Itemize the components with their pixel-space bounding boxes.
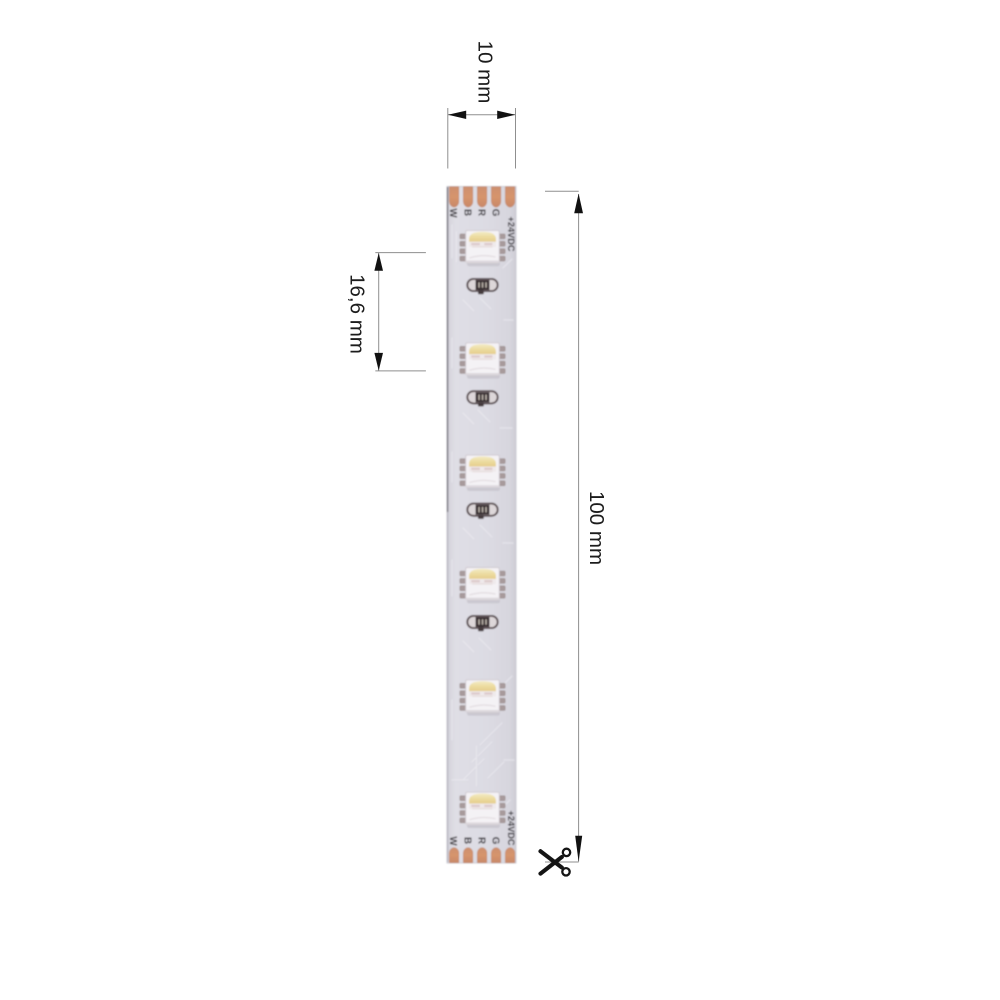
svg-text:16,6 mm: 16,6 mm xyxy=(346,274,369,354)
svg-text:G: G xyxy=(490,209,501,217)
svg-text:B: B xyxy=(462,209,473,216)
svg-text:+24VDC: +24VDC xyxy=(506,217,516,252)
svg-text:R: R xyxy=(476,209,487,216)
svg-text:G: G xyxy=(490,837,501,845)
svg-text:W: W xyxy=(447,208,458,218)
svg-text:W: W xyxy=(447,836,458,846)
svg-text:10 mm: 10 mm xyxy=(474,41,497,104)
svg-text:B: B xyxy=(462,837,473,844)
svg-text:R: R xyxy=(476,837,487,844)
svg-text:+24VDC: +24VDC xyxy=(506,811,516,846)
svg-text:100 mm: 100 mm xyxy=(585,491,608,565)
